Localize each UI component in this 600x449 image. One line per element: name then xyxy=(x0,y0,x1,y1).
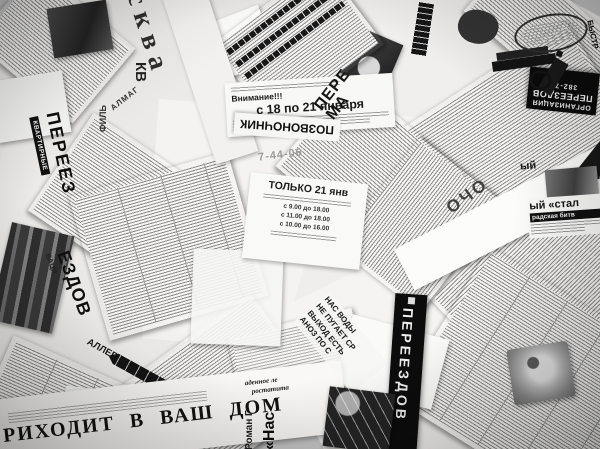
only21-ad: ТОЛЬКО 21 янв с 9.00 до 18.00 с 11.00 до… xyxy=(242,172,368,270)
stal-article: ый «стал радская битв xyxy=(527,193,600,238)
portrait-photo xyxy=(506,340,576,405)
newspaper-collage-photo: сква КВ ФИЛЬ АЛМАГ Внимание!!! с 18 по 2… xyxy=(0,0,600,449)
article-intro: ый xyxy=(520,159,537,172)
headline-fragment: ФИЛЬ xyxy=(98,100,108,132)
byline-fragment: Роман Г xyxy=(244,362,255,449)
header-bar xyxy=(244,1,345,79)
headline-fragment: «Нас xyxy=(261,358,279,449)
blank-scrap xyxy=(190,248,283,346)
dark-photo xyxy=(46,0,113,58)
strip-mark xyxy=(407,297,414,304)
movers-strip-text: ПЕРЕЕЗДОВ xyxy=(393,307,417,422)
dark-ad-photo xyxy=(323,386,396,449)
